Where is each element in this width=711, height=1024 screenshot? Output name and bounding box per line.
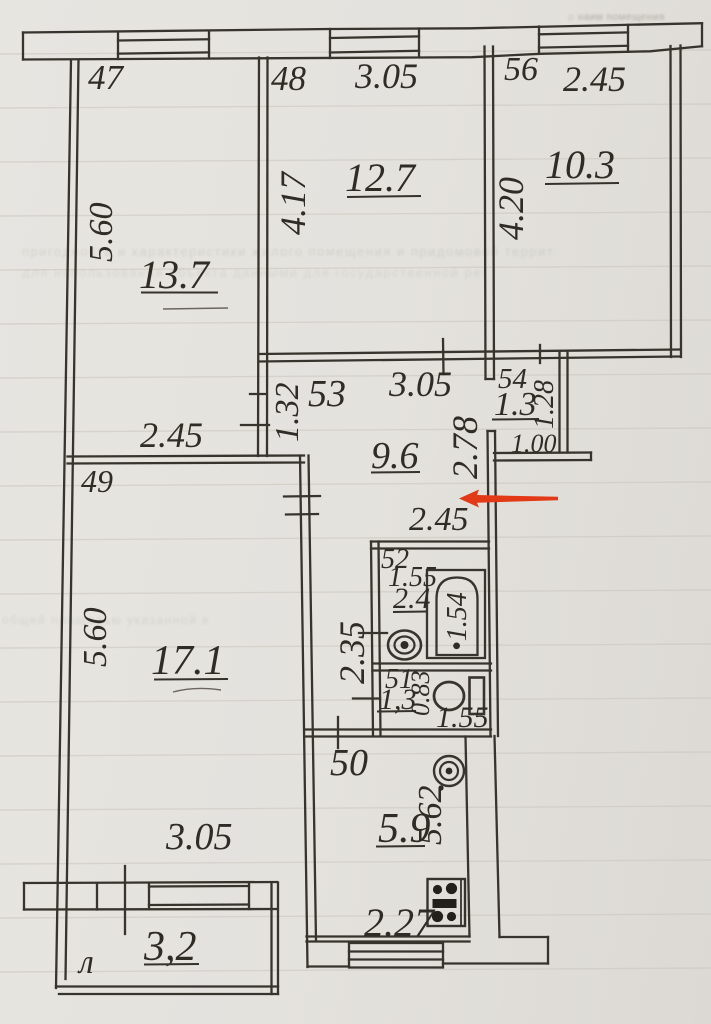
svg-text:2.45: 2.45 [409, 501, 469, 538]
svg-text:3.05: 3.05 [165, 816, 233, 858]
svg-text:л: л [77, 944, 94, 981]
svg-text:48: 48 [271, 59, 307, 98]
svg-text:для использования объекта данн: для использования объекта данными для го… [22, 265, 488, 280]
svg-text:4.20: 4.20 [491, 177, 531, 240]
svg-text:1.32: 1.32 [269, 383, 306, 443]
svg-text:17.1: 17.1 [151, 638, 225, 684]
svg-text:12.7: 12.7 [345, 155, 417, 200]
svg-text:5.62: 5.62 [412, 786, 449, 846]
svg-text:47: 47 [88, 58, 125, 97]
svg-text:0.83: 0.83 [406, 671, 435, 717]
svg-text:1.00: 1.00 [511, 429, 557, 458]
svg-text:1.55: 1.55 [436, 701, 489, 734]
svg-text:9.6: 9.6 [371, 435, 419, 477]
svg-text:2.4: 2.4 [393, 582, 431, 615]
svg-text:3.05: 3.05 [388, 364, 452, 404]
svg-text:50: 50 [330, 742, 368, 784]
svg-text:56: 56 [504, 51, 538, 88]
svg-text:2.45: 2.45 [563, 59, 626, 99]
svg-text:53: 53 [308, 373, 346, 415]
svg-text:2.35: 2.35 [332, 621, 372, 684]
svg-text:5.60: 5.60 [77, 608, 114, 668]
svg-text:⌂ наим помещения: ⌂ наим помещения [568, 12, 665, 23]
svg-text:49: 49 [81, 463, 113, 499]
svg-text:2.27: 2.27 [364, 900, 436, 945]
svg-text:10.3: 10.3 [545, 142, 615, 187]
svg-text:4.17: 4.17 [273, 170, 313, 235]
svg-text:2.78: 2.78 [445, 416, 485, 479]
svg-text:1.28: 1.28 [529, 380, 560, 429]
svg-text:13.7: 13.7 [139, 252, 211, 297]
svg-text:2.45: 2.45 [140, 415, 203, 455]
svg-text:3.05: 3.05 [354, 56, 418, 96]
svg-text:•1.54: •1.54 [442, 592, 473, 651]
svg-text:5.60: 5.60 [83, 203, 120, 263]
